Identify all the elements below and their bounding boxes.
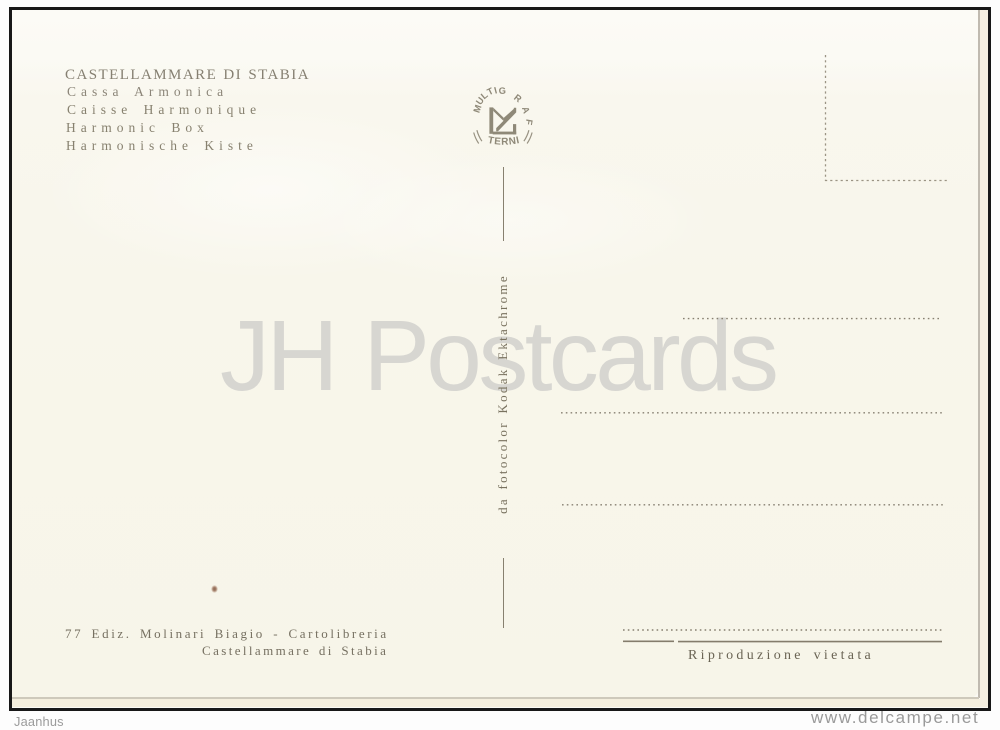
svg-text:TERNI: TERNI [487,135,521,148]
svg-text:A: A [520,105,532,115]
svg-text:R: R [512,92,524,104]
svg-text:G: G [499,86,506,96]
svg-text:F: F [523,118,534,126]
